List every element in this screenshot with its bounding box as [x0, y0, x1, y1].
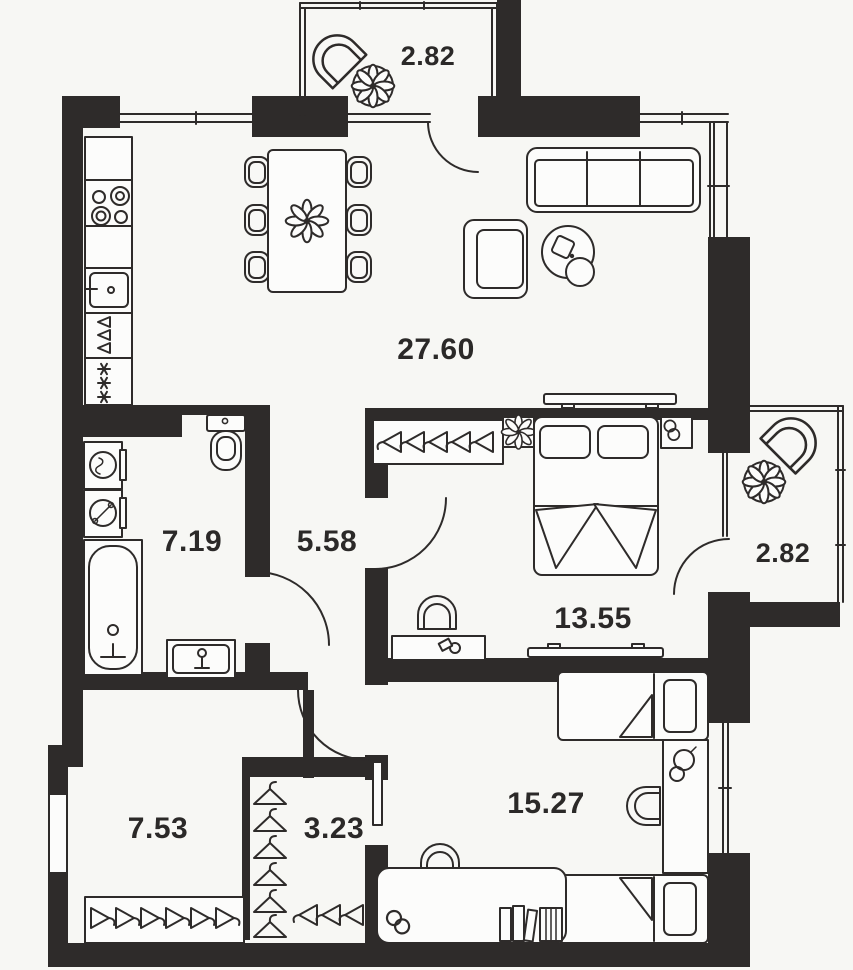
wardrobe [373, 420, 503, 464]
bedroom-furniture [373, 415, 692, 660]
living-area [464, 148, 700, 408]
counter-run [85, 137, 132, 405]
wall [62, 405, 182, 437]
hanger-icon [254, 782, 286, 804]
dining-chair [245, 157, 269, 187]
pillow [664, 883, 696, 935]
window [723, 453, 727, 536]
hanger-icon [317, 905, 340, 925]
room-area-label: 13.55 [554, 602, 632, 635]
wall [740, 602, 840, 627]
pillow [598, 426, 648, 458]
dining-chair [245, 205, 269, 235]
room-area-label: 7.19 [162, 525, 222, 558]
hanger-icon [294, 905, 317, 925]
floor-plan-canvas: 2.82 27.60 7.19 5.58 13.55 2.82 7.53 3.2… [0, 0, 853, 970]
kids-bed-bottom [558, 875, 708, 943]
hanger-icon [254, 863, 286, 885]
kitchen-counter [85, 137, 132, 405]
pillow [540, 426, 590, 458]
books-icon [500, 906, 562, 942]
room-area-label: 3.23 [304, 812, 364, 845]
table-flower-icon [286, 200, 329, 243]
room-area-label: 2.82 [401, 41, 456, 71]
wall [478, 96, 640, 137]
entrance-door [49, 794, 67, 873]
bathtub-icon [84, 540, 142, 675]
dining-chair [347, 252, 371, 282]
room-area-label: 7.53 [128, 812, 188, 845]
bathroom-sink-icon [167, 640, 235, 678]
kids-desk-right [627, 740, 708, 873]
wall [497, 0, 521, 96]
dining-chair [347, 157, 371, 187]
bedroom-desk [392, 596, 485, 660]
wall [48, 943, 750, 967]
hallway-wardrobe [85, 897, 244, 943]
balcony-sill [348, 114, 430, 122]
bedroom-door-arc [375, 498, 446, 569]
dryer-icon [84, 490, 126, 537]
room-area-label: 27.60 [397, 333, 475, 366]
sofa [527, 148, 700, 212]
closet-hangers [254, 782, 363, 937]
toilet-icon [207, 415, 245, 470]
balcony-top-furniture [304, 26, 395, 108]
room-area-label: 2.82 [756, 538, 811, 568]
kids-bed-top [558, 672, 708, 740]
wall [708, 237, 750, 453]
kids-desk-bottom [377, 844, 566, 943]
plant-icon [743, 461, 786, 504]
wall [182, 405, 245, 415]
dining-chair [245, 252, 269, 282]
bedroom-balcony-door-arc [674, 539, 729, 594]
plant-icon [502, 415, 536, 449]
desk-chair [418, 596, 456, 629]
hanger-icon [254, 915, 286, 937]
floor-plan: 2.82 27.60 7.19 5.58 13.55 2.82 7.53 3.2… [0, 0, 853, 970]
balcony-door-arc [428, 122, 478, 172]
coffee-table [542, 226, 594, 286]
room-area-label: 15.27 [507, 787, 585, 820]
kitchen-sink-icon [86, 273, 128, 307]
nightstand [659, 417, 692, 448]
hanger-icon [254, 836, 286, 858]
desk-chair [627, 787, 660, 825]
dining-set [245, 150, 371, 292]
window [120, 112, 252, 124]
bathroom-door-arc [256, 572, 329, 645]
fridge-icon [98, 364, 110, 402]
hanger-icon [340, 905, 363, 925]
window [719, 723, 731, 853]
tv [544, 394, 676, 408]
dining-chair [347, 205, 371, 235]
window [708, 122, 729, 238]
wall [245, 405, 270, 577]
double-bed [534, 417, 658, 575]
closet-door-leaf [373, 762, 382, 825]
room-area-label: 5.58 [297, 525, 357, 558]
washer-icon [84, 442, 126, 489]
pillow [664, 680, 696, 732]
hanger-icon [254, 809, 286, 831]
plant-icon [352, 65, 395, 108]
plant-stand [502, 415, 536, 449]
armchair [464, 220, 527, 298]
bedroom-tv [528, 644, 663, 657]
balcony-right-furniture [743, 408, 826, 503]
hanger-icon [254, 890, 286, 912]
